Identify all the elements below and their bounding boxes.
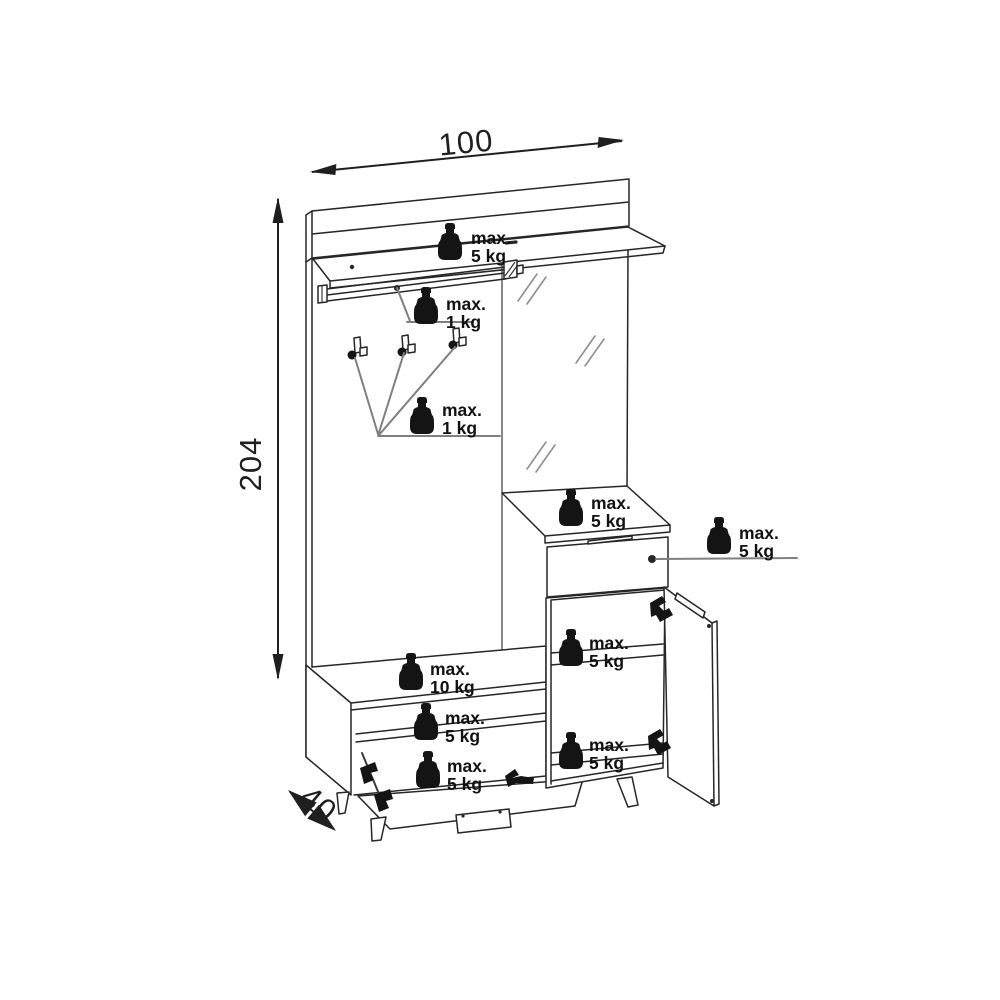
- bench-front-leg: [371, 817, 386, 841]
- weight-icon: [438, 223, 462, 260]
- cabinet-top: [502, 486, 670, 536]
- load-label-line2: 10 kg: [430, 677, 475, 697]
- weight-icon: [707, 517, 731, 554]
- depth-value: 40: [294, 779, 344, 829]
- load-label-drawer: max. 5 kg: [707, 517, 779, 561]
- load-label-line2: 5 kg: [471, 246, 506, 266]
- load-label-line1: max.: [446, 294, 486, 314]
- load-label-line1: max.: [430, 659, 470, 679]
- weight-icon: [414, 703, 438, 740]
- load-label-line2: 5 kg: [591, 511, 626, 531]
- load-label-bench-top: max. 10 kg: [399, 653, 475, 697]
- load-label-cabinet-bottom-shelf: max. 5 kg: [559, 732, 629, 773]
- load-label-line1: max.: [471, 228, 511, 248]
- height-dimension: 204: [233, 197, 284, 680]
- depth-dimension: 40: [288, 779, 344, 831]
- furniture-drawing: [306, 179, 797, 841]
- load-label-line2: 5 kg: [447, 774, 482, 794]
- weight-icon: [416, 751, 440, 788]
- load-label-cabinet-middle-shelf: max. 5 kg: [559, 629, 629, 671]
- flap-stay: [360, 762, 378, 784]
- load-label-cabinet-top: max. 5 kg: [559, 489, 631, 531]
- load-label-line1: max.: [739, 523, 779, 543]
- diagram-svg: 100 204 40: [0, 0, 1000, 1000]
- drawer-front: [547, 537, 668, 597]
- width-dimension: 100: [310, 123, 624, 175]
- load-label-line1: max.: [589, 735, 629, 755]
- weight-icon: [410, 397, 434, 434]
- load-label-line2: 1 kg: [446, 312, 481, 332]
- load-label-bench-shelf: max. 5 kg: [414, 703, 485, 746]
- cabinet-leg: [617, 777, 638, 807]
- load-label-coat-rail: max. 1 kg: [414, 287, 486, 332]
- load-label-line2: 5 kg: [589, 753, 624, 773]
- load-label-line2: 1 kg: [442, 418, 477, 438]
- load-label-line1: max.: [589, 633, 629, 653]
- load-label-line2: 5 kg: [739, 541, 774, 561]
- load-label-hooks: max. 1 kg: [410, 397, 482, 438]
- load-label-line1: max.: [591, 493, 631, 513]
- drawer-callout-dot: [648, 555, 656, 563]
- height-value: 204: [233, 437, 268, 492]
- furniture-assembly-diagram: 100 204 40: [0, 0, 1000, 1000]
- load-label-line2: 5 kg: [589, 651, 624, 671]
- load-label-line1: max.: [445, 708, 485, 728]
- width-value: 100: [437, 123, 495, 163]
- bench-rear-leg: [337, 792, 349, 814]
- load-label-top-shelf: max. 5 kg: [438, 223, 511, 266]
- hook-icon: [398, 335, 416, 357]
- load-label-line2: 5 kg: [445, 726, 480, 746]
- load-label-line1: max.: [442, 400, 482, 420]
- load-label-line1: max.: [447, 756, 487, 776]
- weight-icon: [414, 287, 438, 324]
- hook-icon: [348, 337, 368, 360]
- load-label-bench-flap: max. 5 kg: [416, 751, 487, 794]
